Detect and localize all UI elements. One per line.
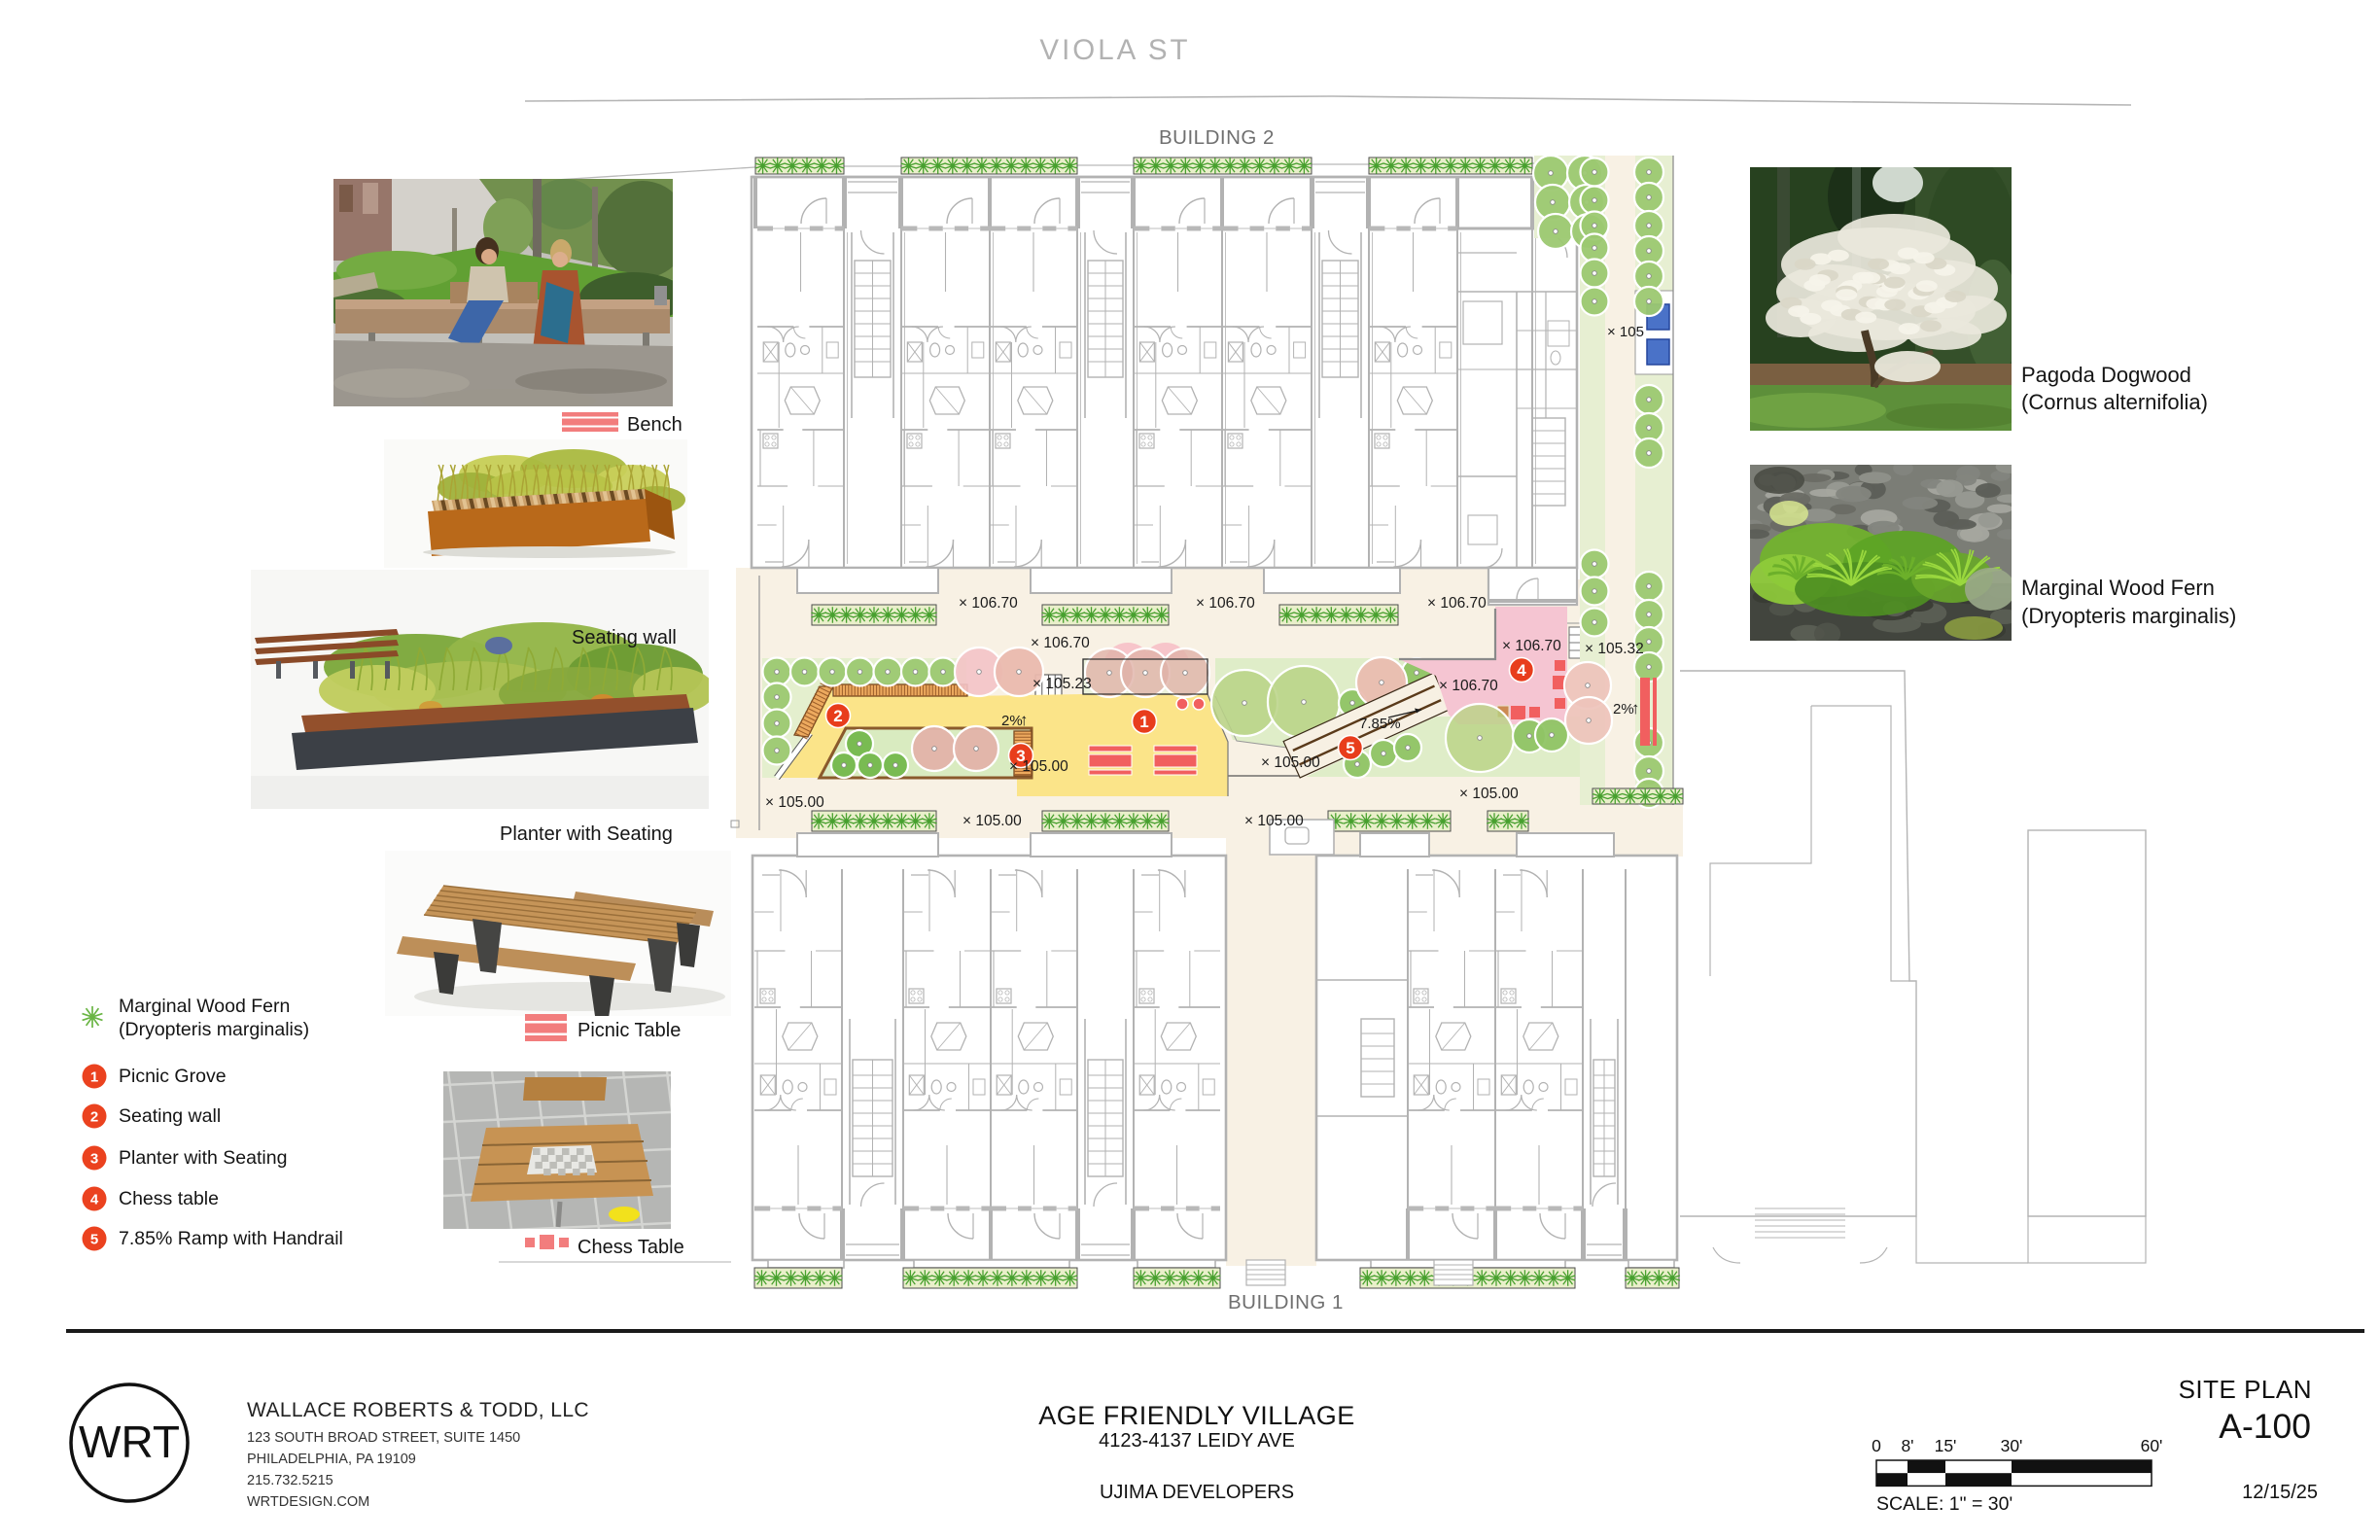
svg-text:Planter with Seating: Planter with Seating (119, 1147, 287, 1169)
svg-text:PHILADELPHIA, PA 19109: PHILADELPHIA, PA 19109 (247, 1452, 416, 1467)
svg-text:× 105.00: × 105.00 (765, 794, 824, 811)
svg-text:1: 1 (90, 1069, 98, 1086)
svg-text:WRTDESIGN.COM: WRTDESIGN.COM (247, 1494, 369, 1510)
svg-text:× 106.70: × 106.70 (1196, 595, 1255, 612)
svg-text:× 106.70: × 106.70 (1439, 678, 1498, 694)
svg-text:30': 30' (2001, 1436, 2023, 1455)
svg-text:1: 1 (1139, 713, 1148, 731)
svg-text:Pagoda Dogwood: Pagoda Dogwood (2021, 363, 2191, 387)
svg-text:5: 5 (90, 1232, 98, 1248)
svg-text:8': 8' (1901, 1436, 1913, 1455)
svg-text:AGE FRIENDLY VILLAGE: AGE FRIENDLY VILLAGE (1038, 1401, 1355, 1430)
svg-text:15': 15' (1935, 1436, 1957, 1455)
svg-text:(Dryopteris marginalis): (Dryopteris marginalis) (119, 1019, 309, 1040)
svg-text:123 SOUTH BROAD STREET, SUITE: 123 SOUTH BROAD STREET, SUITE 1450 (247, 1430, 520, 1446)
svg-text:Seating wall: Seating wall (572, 627, 677, 648)
svg-text:WALLACE ROBERTS & TODD, LLC: WALLACE ROBERTS & TODD, LLC (247, 1399, 589, 1421)
svg-text:WRT: WRT (79, 1417, 180, 1467)
svg-text:× 105.00: × 105.00 (1459, 786, 1519, 802)
svg-text:× 105.00: × 105.00 (1244, 813, 1304, 829)
svg-text:Seating wall: Seating wall (119, 1105, 221, 1127)
svg-text:4: 4 (1517, 661, 1526, 680)
svg-text:↑: ↑ (1631, 699, 1640, 717)
svg-text:UJIMA DEVELOPERS: UJIMA DEVELOPERS (1100, 1482, 1294, 1503)
svg-text:× 106.70: × 106.70 (1502, 638, 1561, 654)
svg-text:215.732.5215: 215.732.5215 (247, 1473, 333, 1488)
svg-text:× 106.70: × 106.70 (959, 595, 1018, 612)
svg-text:4: 4 (90, 1192, 99, 1208)
svg-text:3: 3 (90, 1151, 98, 1168)
svg-text:SCALE: 1" = 30': SCALE: 1" = 30' (1876, 1493, 2012, 1515)
svg-text:× 105.23: × 105.23 (1032, 676, 1092, 692)
svg-text:↑: ↑ (1020, 711, 1029, 729)
svg-text:4123-4137 LEIDY AVE: 4123-4137 LEIDY AVE (1099, 1430, 1295, 1452)
svg-text:BUILDING 2: BUILDING 2 (1159, 126, 1275, 149)
svg-text:× 105.32: × 105.32 (1585, 641, 1644, 657)
svg-text:× 105.00: × 105.00 (962, 813, 1022, 829)
svg-text:12/15/25: 12/15/25 (2242, 1482, 2318, 1503)
svg-text:× 105.00: × 105.00 (1009, 758, 1068, 775)
svg-text:Picnic Grove: Picnic Grove (119, 1066, 227, 1087)
svg-text:SITE PLAN: SITE PLAN (2179, 1375, 2312, 1404)
svg-text:Chess table: Chess table (119, 1188, 219, 1209)
svg-text:× 105.00: × 105.00 (1261, 754, 1320, 771)
svg-text:BUILDING 1: BUILDING 1 (1228, 1291, 1344, 1313)
svg-text:VIOLA ST: VIOLA ST (1039, 34, 1190, 66)
svg-text:Marginal Wood Fern: Marginal Wood Fern (119, 996, 290, 1017)
svg-text:Bench: Bench (627, 414, 682, 436)
svg-text:(Cornus alternifolia): (Cornus alternifolia) (2021, 390, 2208, 414)
svg-text:× 106.70: × 106.70 (1031, 635, 1090, 651)
svg-text:5: 5 (1346, 739, 1354, 757)
svg-text:Marginal Wood Fern: Marginal Wood Fern (2021, 576, 2215, 600)
svg-text:× 106.70: × 106.70 (1427, 595, 1487, 612)
svg-text:0: 0 (1872, 1436, 1881, 1455)
svg-text:2: 2 (833, 707, 842, 725)
svg-text:× 105: × 105 (1607, 324, 1644, 340)
svg-text:Planter with Seating: Planter with Seating (500, 823, 673, 845)
svg-text:Picnic Table: Picnic Table (577, 1020, 681, 1041)
svg-text:Chess Table: Chess Table (577, 1237, 684, 1258)
svg-text:7.85%: 7.85% (1359, 716, 1401, 732)
svg-text:7.85% Ramp with Handrail: 7.85% Ramp with Handrail (119, 1228, 343, 1249)
svg-text:(Dryopteris marginalis): (Dryopteris marginalis) (2021, 604, 2236, 628)
svg-text:A-100: A-100 (2219, 1407, 2311, 1446)
svg-text:2: 2 (90, 1109, 98, 1126)
svg-text:60': 60' (2141, 1436, 2163, 1455)
